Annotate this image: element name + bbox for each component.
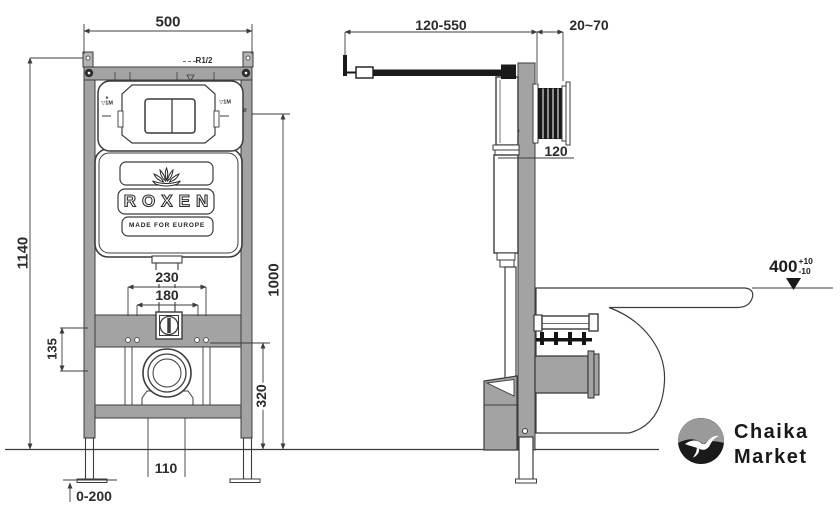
logo-text-line1: Chaika <box>734 421 809 443</box>
dim-leg-adjust-label: 0-200 <box>76 489 112 503</box>
flush-plate <box>98 81 243 151</box>
inlet-support-arm <box>343 55 516 79</box>
leg-right <box>244 438 252 479</box>
dim-1000-label: 1000 <box>267 263 282 296</box>
dim-320-label: 320 <box>254 382 268 409</box>
frame-top-tabs <box>83 52 253 67</box>
plate-mark-right: ▽1M <box>219 100 231 106</box>
seat-height-tol-plus: +10 <box>798 257 812 266</box>
side-leg <box>516 429 537 484</box>
made-for-europe-text: MADE FOR EUROPE <box>129 223 205 230</box>
plate-mark-triangle: ▲ <box>105 96 109 101</box>
crossbar <box>95 312 241 347</box>
flush-buttons <box>145 99 195 133</box>
logo-text-line2: Market <box>734 446 807 468</box>
plate-mark-left: ▲ ▽1M <box>101 96 113 107</box>
rail-mark: N <box>244 108 249 112</box>
dim-110-label: 110 <box>153 461 180 475</box>
technical-drawing-page: 500 1140 135 230 180 1000 320 110 0-200 … <box>0 0 840 525</box>
dim-135-label: 135 <box>46 338 59 360</box>
dim-500-label: 500 <box>155 15 180 30</box>
seat-height-dim: 400 +10 -10 <box>769 257 813 275</box>
wall-sleeve <box>533 82 570 145</box>
drain-assembly <box>125 347 210 405</box>
brand-logo-text: ROXEN <box>124 193 214 210</box>
foot-right <box>230 479 260 483</box>
dim-1140-label: 1140 <box>16 237 31 270</box>
front-view <box>77 52 260 483</box>
side-cistern <box>493 77 519 379</box>
dim-wall-range-label: 20~70 <box>569 18 608 32</box>
side-frame-bar <box>518 63 535 450</box>
dim-120-label: 120 <box>544 144 567 158</box>
supply-valve <box>534 314 598 345</box>
dim-depth-range-label: 120-550 <box>415 18 466 32</box>
side-view <box>343 55 833 483</box>
seat-height-value: 400 <box>769 258 797 275</box>
dim-180-label: 180 <box>153 288 180 302</box>
seat-height-tol-minus: -10 <box>798 267 812 276</box>
drain-elbow <box>484 376 517 450</box>
dim-230-label: 230 <box>153 270 180 284</box>
inlet-size-label: R1/2 <box>196 57 213 65</box>
side-drain-pipe <box>535 351 599 398</box>
leg-left <box>86 438 94 479</box>
chaika-market-logo-icon <box>678 418 724 464</box>
drawing-linework <box>0 0 840 525</box>
